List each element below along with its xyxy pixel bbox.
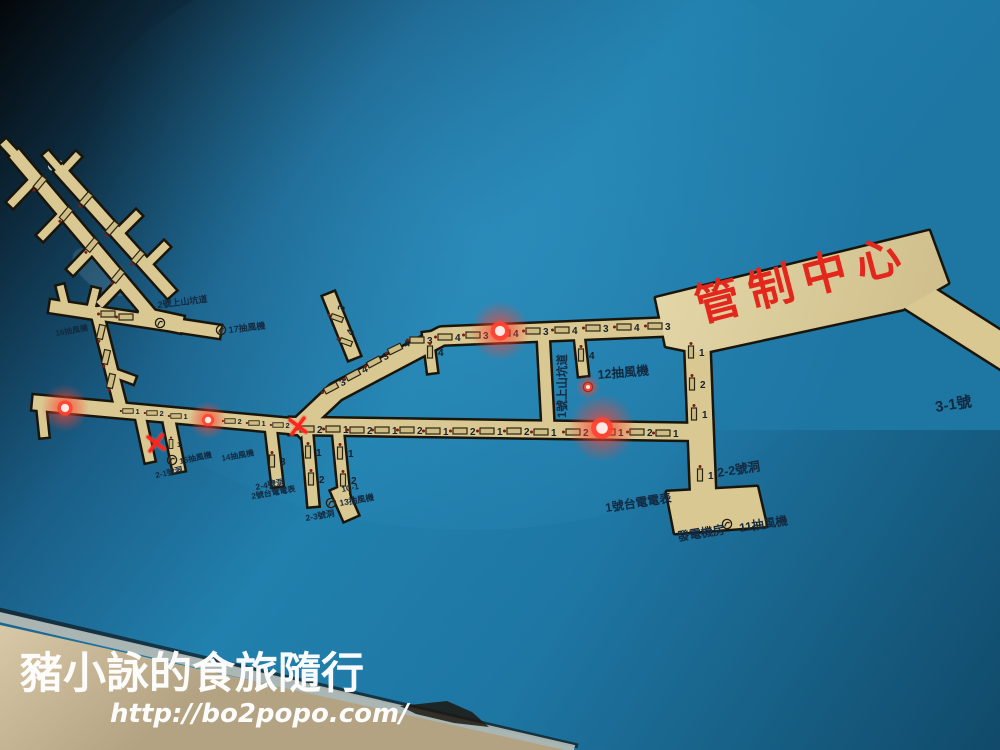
berth-box [648,323,662,329]
berth-box [689,346,694,358]
unlit-led-dot [551,329,554,332]
unlit-led-dot [580,345,583,348]
berth-box [656,430,670,436]
berth-box [169,440,173,449]
berth-number: 3 [603,324,609,335]
unlit-led-dot [170,437,172,439]
berth-number: 1 [673,429,679,440]
tunnel-passage [307,431,313,501]
berth-box [579,349,584,361]
berth-number: 1 [348,449,354,460]
berth-box [690,378,695,390]
led-core [596,422,608,434]
unlit-led-dot [582,327,585,330]
berth-number: 1 [443,427,449,438]
berth-box [617,324,631,330]
berth-box [101,311,115,317]
tunnel-passage [543,332,548,426]
berth-box [555,327,569,333]
unlit-led-dot [310,469,313,472]
watermark-blog-name: 豬小詠的食旅隨行 [20,650,364,698]
unlit-led-dot [690,342,693,345]
berth-number: 3 [665,322,671,333]
berth-box [119,314,133,320]
berth-number: 2 [470,427,476,438]
berth-box [698,469,703,481]
label-1-uphill-tunnel: 1號上山坑道 [555,354,569,418]
berth-box [350,427,364,433]
unlit-led-dot [168,415,170,417]
tunnel-map-photo: 3434343434343344421212121212121121212112… [0,0,1000,750]
unlit-led-dot [371,429,374,432]
unlit-led-dot [652,432,655,435]
berth-box [375,427,389,433]
berth-box [453,428,467,434]
unlit-led-dot [307,442,310,445]
berth-number: 4 [438,348,444,359]
berth-box [410,337,424,343]
berth-number: 2 [700,380,706,391]
berth-number: 2 [160,409,164,418]
unlit-led-dot [562,431,565,434]
unlit-led-dot [322,428,325,431]
berth-box [480,428,494,434]
fan-circle [326,498,335,507]
led-light [41,384,89,432]
berth-number: 4 [634,323,640,334]
unlit-led-dot [422,430,425,433]
berth-box [400,427,414,433]
unlit-led-dot [144,412,146,414]
berth-box [326,426,340,432]
unlit-led-dot [396,429,399,432]
unlit-led-dot [693,404,696,407]
led-light [576,375,600,399]
unlit-led-dot [270,424,272,426]
unlit-led-dot [120,410,122,412]
fan-circle [155,318,164,327]
watermark-url: http://bo2popo.com/ [110,699,411,729]
led-core [205,417,211,423]
berth-number: 2 [317,425,323,436]
fan-circle [167,455,176,464]
unlit-led-dot [342,470,345,473]
berth-box [306,446,311,458]
tunnel-passage [61,289,66,309]
berth-box [426,428,440,434]
unlit-led-dot [339,443,342,446]
berth-number: 1 [136,407,140,416]
berth-number: 1 [497,427,503,438]
berth-number: 2 [319,475,325,486]
berth-number: 4 [455,333,461,344]
led-core [61,404,69,412]
unlit-led-dot [644,325,647,328]
unlit-led-dot [115,316,118,319]
berth-number: 1 [177,440,181,449]
berth-number: 1 [184,412,188,421]
berth-number: 1 [262,419,266,428]
berth-number: 4 [572,326,578,337]
unlit-led-dot [503,430,506,433]
berth-number: 1 [702,410,708,421]
unlit-led-dot [97,313,100,316]
unlit-led-dot [476,430,479,433]
led-core [586,385,590,389]
berth-number: 2 [524,427,530,438]
berth-box [428,346,433,358]
berth-number: 3 [427,336,433,347]
berth-box [147,411,158,416]
berth-box [586,325,600,331]
berth-number: 3 [543,327,549,338]
led-core [495,326,505,336]
berth-box [273,423,284,428]
unlit-led-dot [691,374,694,377]
berth-box [249,421,260,426]
led-light [568,394,636,462]
fan-icon [216,325,225,334]
berth-number: 1 [316,448,322,459]
unlit-led-dot [406,339,409,342]
unlit-led-dot [246,422,248,424]
unlit-led-dot [613,326,616,329]
unlit-led-dot [699,465,702,468]
led-light [189,401,227,439]
fan-icon [167,455,176,464]
berth-box [534,429,548,435]
unlit-led-dot [434,336,437,339]
unlit-led-dot [449,430,452,433]
berth-number: 3 [280,457,286,468]
unlit-led-dot [346,429,349,432]
fan-icon [155,318,164,327]
led-light [470,301,530,361]
berth-box [438,334,452,340]
berth-box [507,428,521,434]
fan-circle [216,325,225,334]
berth-box [171,414,182,419]
unlit-led-dot [530,431,533,434]
unlit-led-dot [429,342,432,345]
berth-box [309,473,314,485]
berth-number: 1 [708,471,714,482]
berth-box [270,455,275,467]
unlit-led-dot [271,451,274,454]
berth-box [338,447,343,459]
berth-number: 4 [589,351,595,362]
berth-box [123,409,134,414]
unlit-led-dot [462,334,465,337]
berth-number: 1 [699,348,705,359]
fan-icon [326,498,335,507]
berth-box [692,408,697,420]
berth-number: 2 [238,417,242,426]
berth-number: 1 [551,428,557,439]
